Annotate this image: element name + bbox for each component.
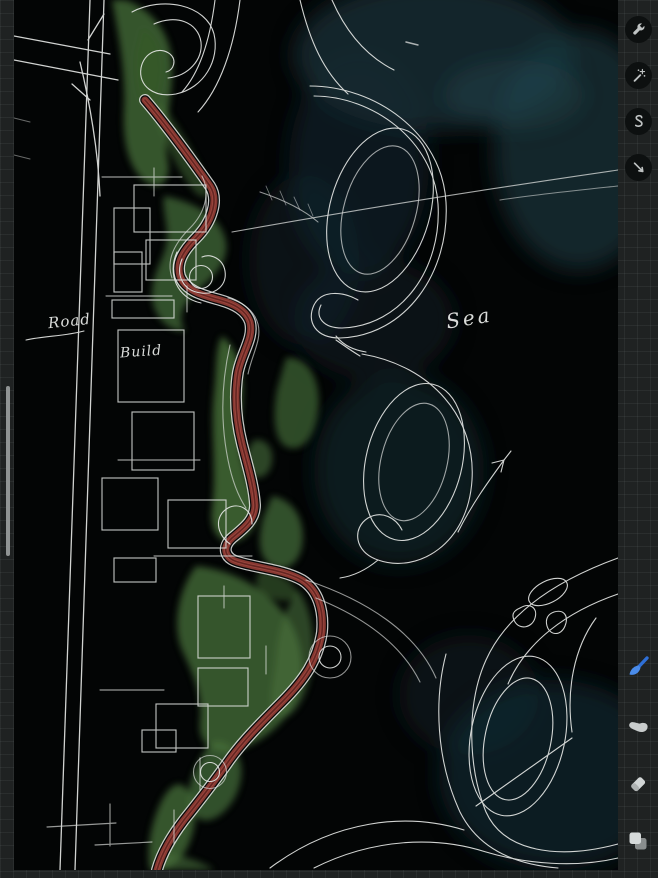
layers-icon: [625, 828, 651, 854]
wrench-icon: [630, 21, 647, 38]
selection-s-button[interactable]: [625, 108, 652, 135]
s-curve-icon: [630, 113, 647, 130]
road-lines: [14, 0, 118, 870]
brush-size-slider[interactable]: [6, 386, 10, 556]
eraser-icon: [625, 770, 651, 796]
tool-sidebar: [618, 0, 658, 878]
actions-wrench-button[interactable]: [625, 16, 652, 43]
vegetation-layer: [112, 0, 319, 870]
site-plan-sketch: [14, 0, 618, 870]
layers-button[interactable]: [625, 827, 652, 854]
bottom-tool-group: [618, 653, 658, 854]
magic-wand-icon: [630, 67, 647, 84]
road-underline: [26, 331, 84, 340]
smudge-finger-icon: [625, 712, 651, 738]
arrow-icon: [630, 159, 647, 176]
eraser-tool-button[interactable]: [625, 769, 652, 796]
adjustments-wand-button[interactable]: [625, 62, 652, 89]
transform-arrow-button[interactable]: [625, 154, 652, 181]
paint-brush-button[interactable]: [625, 653, 652, 680]
smudge-tool-button[interactable]: [625, 711, 652, 738]
app-window: { "background": { "color": "#1f2222", "g…: [0, 0, 658, 878]
paintbrush-icon: [625, 654, 651, 680]
top-tool-group: [618, 16, 658, 181]
drawing-canvas[interactable]: Road Build Sea: [14, 0, 618, 870]
